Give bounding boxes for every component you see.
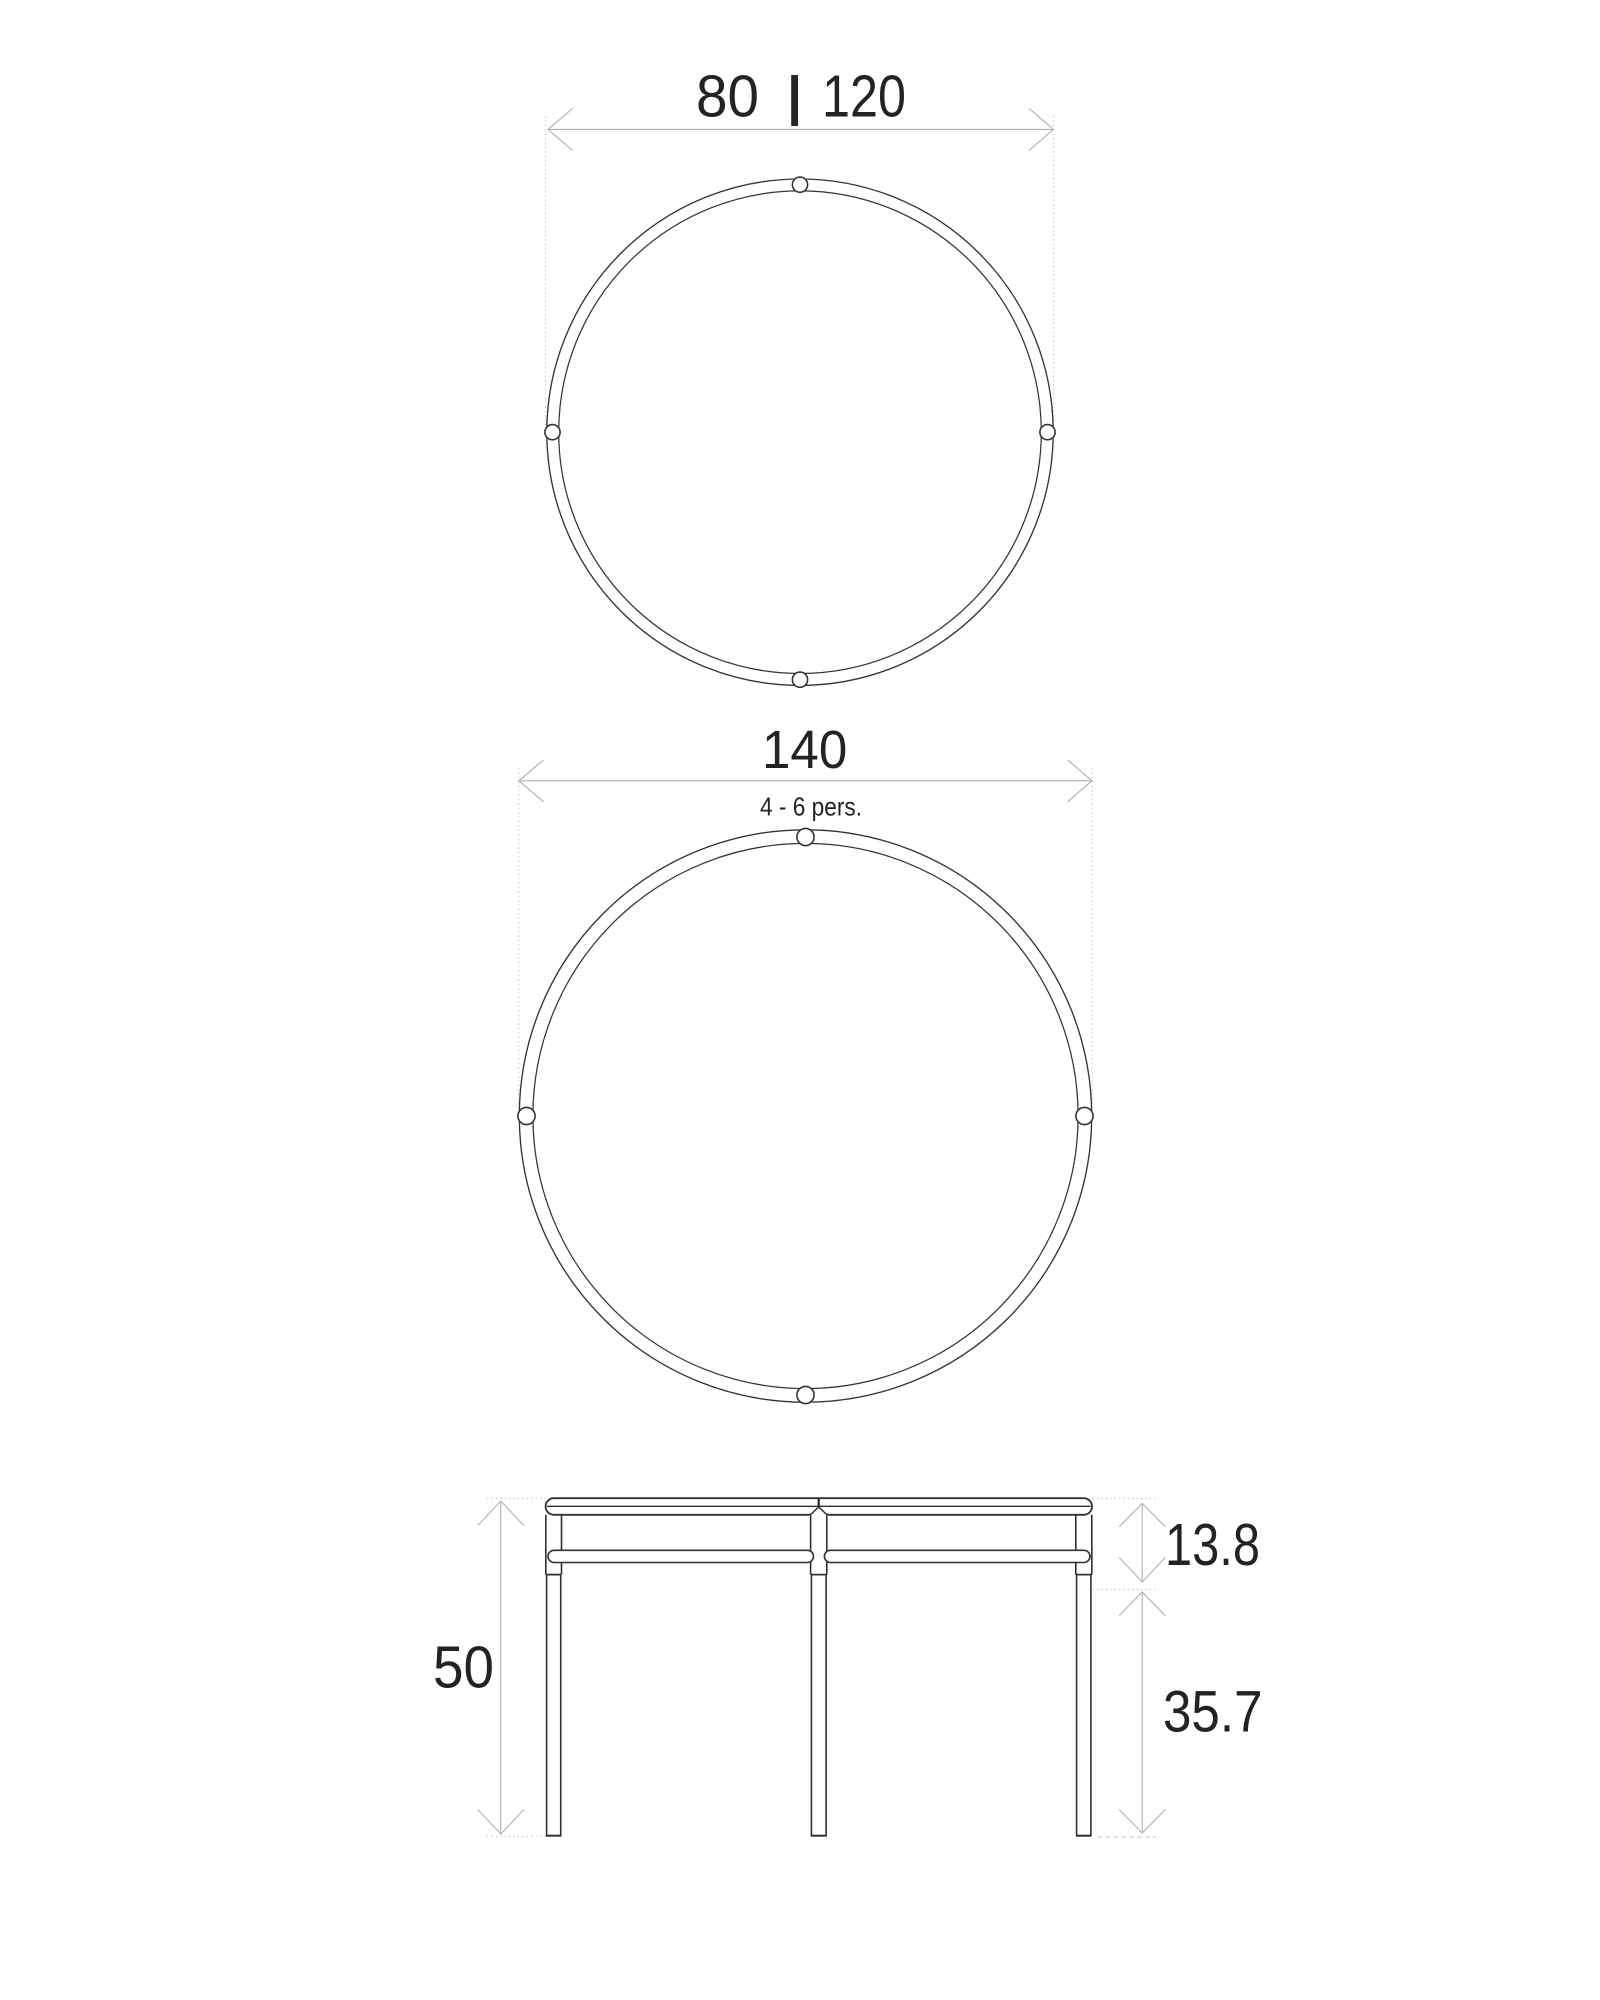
svg-text:50: 50 xyxy=(433,1634,494,1700)
svg-text:120: 120 xyxy=(822,64,906,130)
svg-text:35.7: 35.7 xyxy=(1163,1680,1263,1745)
svg-text:140: 140 xyxy=(762,720,847,780)
svg-text:13.8: 13.8 xyxy=(1165,1512,1260,1578)
svg-text:80: 80 xyxy=(696,64,759,130)
svg-text:4 - 6 pers.: 4 - 6 pers. xyxy=(760,792,862,822)
